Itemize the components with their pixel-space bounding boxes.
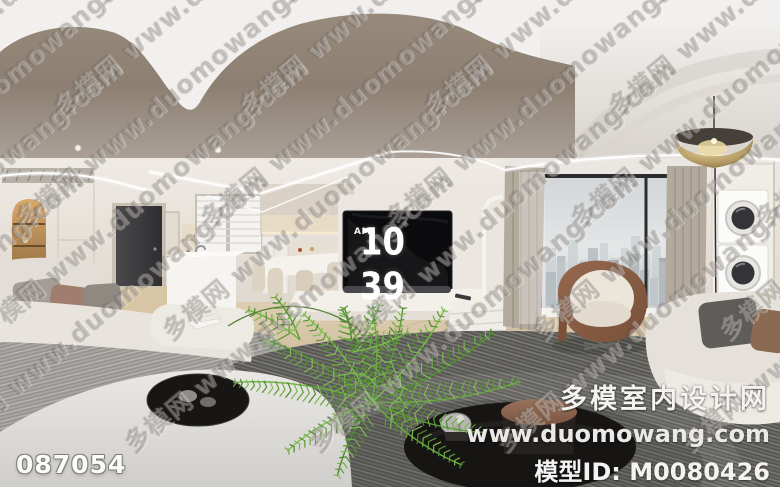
tv-clock: AM 10 39 bbox=[347, 218, 453, 286]
downlight bbox=[215, 147, 221, 153]
site-name: 多模室内设计网 bbox=[560, 377, 770, 416]
dining-chair bbox=[268, 268, 283, 300]
model-id-value: M0080426 bbox=[629, 458, 770, 486]
window-blinds bbox=[197, 201, 261, 243]
model-id: 模型ID: M0080426 bbox=[534, 452, 770, 487]
armchair bbox=[552, 261, 648, 355]
entry-door bbox=[116, 206, 162, 286]
downlight bbox=[75, 145, 81, 151]
kitchen-window bbox=[196, 195, 227, 253]
panorama-render: 多模网 www.duomowang.com多模网 www.duomowang.c… bbox=[0, 0, 780, 487]
model-id-label: 模型ID: bbox=[534, 458, 620, 486]
tv-clock-time: 10 39 bbox=[360, 219, 451, 308]
framed-art bbox=[165, 212, 179, 257]
site-url: www.duomowang.com bbox=[466, 420, 770, 448]
sheer-curtain bbox=[519, 172, 545, 324]
door-handle bbox=[153, 247, 156, 250]
dining-chair bbox=[252, 262, 265, 292]
image-id-label: 087054 bbox=[16, 450, 126, 479]
site-footer: 多模室内设计网 www.duomowang.com 模型ID: M0080426 bbox=[466, 377, 770, 487]
